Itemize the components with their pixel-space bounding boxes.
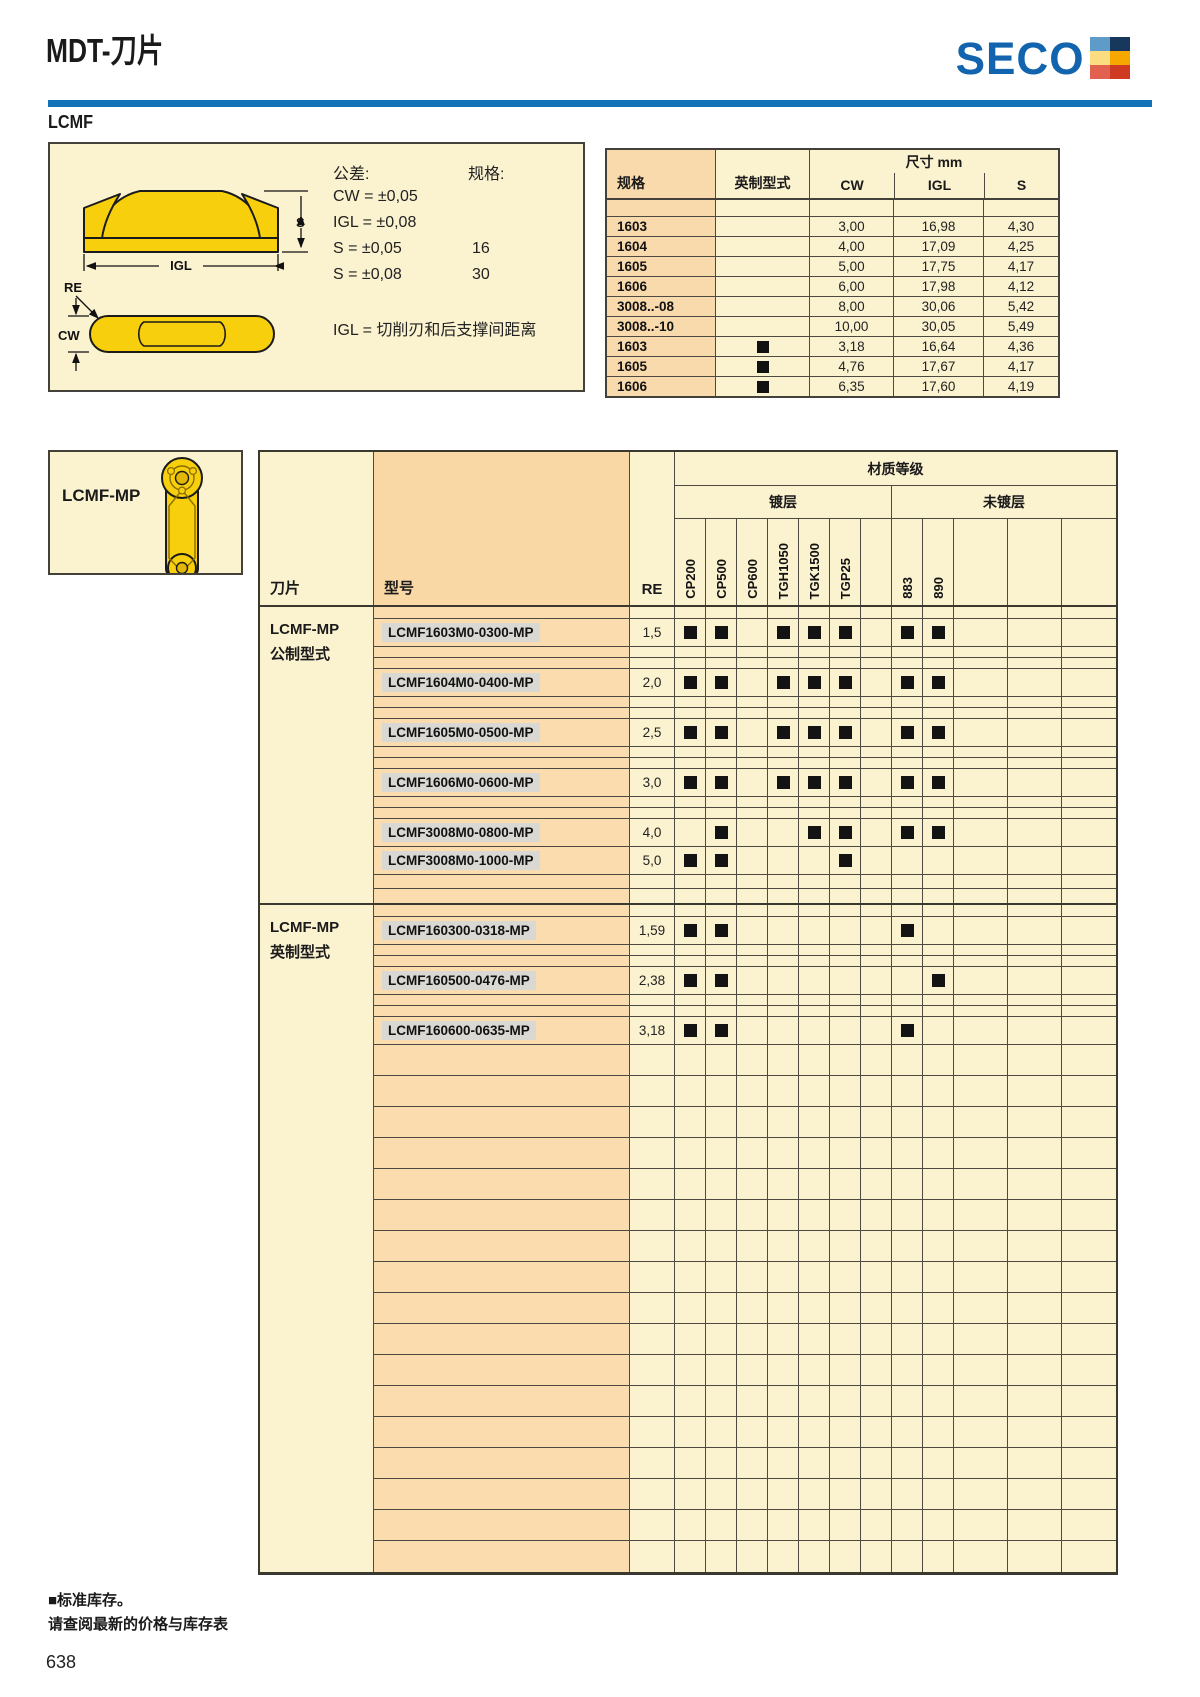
grade-cell — [737, 905, 768, 916]
dim-table-row: 16066,3517,604,19 — [607, 377, 1058, 396]
grade-cell — [861, 1045, 892, 1075]
model-cell — [374, 747, 630, 757]
grade-cell — [768, 1231, 799, 1261]
spacer-row — [374, 607, 1116, 619]
grade-cell — [768, 1045, 799, 1075]
grade-cell — [892, 797, 923, 807]
grade-cell — [737, 669, 768, 696]
grade-cell — [923, 1479, 954, 1509]
grade-cell — [768, 1076, 799, 1106]
grade-cell — [1008, 889, 1062, 903]
empty-row — [374, 1541, 1116, 1572]
grade-cell — [799, 1448, 830, 1478]
grade-cell — [923, 1355, 954, 1385]
grade-cell — [861, 905, 892, 916]
grade-cell — [830, 1324, 861, 1354]
grade-cell — [923, 967, 954, 994]
grade-cell — [1008, 1169, 1062, 1199]
grade-cell — [737, 1169, 768, 1199]
grade-cell — [706, 905, 737, 916]
grade-cell — [706, 1045, 737, 1075]
grade-cell — [830, 647, 861, 657]
grade-cell — [675, 1107, 706, 1137]
grade-cell — [861, 1417, 892, 1447]
grade-cell — [830, 769, 861, 796]
empty-row — [374, 1479, 1116, 1510]
grade-cell — [706, 1479, 737, 1509]
model-cell — [374, 875, 630, 888]
model-cell: LCMF1603M0-0300-MP — [374, 619, 630, 646]
grade-cell — [923, 956, 954, 966]
grade-cell — [923, 1169, 954, 1199]
grade-cell — [1062, 1017, 1116, 1044]
stock-square — [808, 676, 821, 689]
grade-cell — [706, 1200, 737, 1230]
grade-columns: CP200CP500CP600TGH1050TGK1500TGP25883890 — [675, 519, 1116, 605]
spacer-row — [374, 758, 1116, 769]
grade-cell — [768, 1262, 799, 1292]
grade-col-empty — [1008, 519, 1062, 605]
stock-square — [932, 776, 945, 789]
grade-cell — [799, 808, 830, 818]
spacer-row — [374, 747, 1116, 758]
grade-cell — [737, 719, 768, 746]
grade-cell — [1062, 905, 1116, 916]
grade-cell — [1008, 669, 1062, 696]
grade-cell — [830, 719, 861, 746]
model-cell — [374, 1448, 630, 1478]
stock-square — [715, 974, 728, 987]
grade-cell — [892, 708, 923, 718]
stock-square — [808, 626, 821, 639]
grade-cell — [954, 917, 1008, 944]
grade-col-empty — [1062, 519, 1116, 605]
dim-s-cell: 4,36 — [984, 337, 1058, 356]
grade-cell — [892, 1479, 923, 1509]
grade-cell — [768, 697, 799, 707]
grade-cell — [737, 875, 768, 888]
grade-cell — [706, 1541, 737, 1572]
dim-igl-cell: 17,75 — [894, 257, 984, 276]
stock-square — [757, 381, 769, 393]
grade-cell — [1008, 1386, 1062, 1416]
grade-cell — [923, 875, 954, 888]
grade-cell — [861, 945, 892, 955]
grade-cell — [737, 1293, 768, 1323]
grade-cell — [706, 1262, 737, 1292]
grade-cell — [830, 758, 861, 768]
grade-cell — [1062, 995, 1116, 1005]
grade-cell — [706, 1107, 737, 1137]
dim-size-group: 尺寸 mm CW IGL S — [810, 150, 1058, 198]
grade-cell — [706, 847, 737, 874]
grade-cell — [923, 797, 954, 807]
grade-cell — [768, 647, 799, 657]
re-cell — [630, 808, 675, 818]
tolerance-igl: IGL = ±0,08 — [333, 214, 416, 232]
spacer-row — [374, 697, 1116, 708]
stock-square — [839, 676, 852, 689]
stock-square — [932, 826, 945, 839]
table-section: LCMF-MP英制型式LCMF160300-0318-MP1,59LCMF160… — [260, 903, 1116, 1572]
grade-cell — [923, 1510, 954, 1540]
grade-cell — [861, 956, 892, 966]
model-cell — [374, 1510, 630, 1540]
grade-cell — [830, 1262, 861, 1292]
grade-cell — [1008, 967, 1062, 994]
grade-cell — [737, 769, 768, 796]
dim-s-cell — [984, 200, 1058, 216]
grade-cell — [954, 747, 1008, 757]
spacer-row — [374, 875, 1116, 889]
grade-col-890: 890 — [923, 519, 954, 605]
grade-cell — [892, 1541, 923, 1572]
grade-cell — [861, 769, 892, 796]
dim-inch-cell — [716, 357, 810, 376]
grade-cell — [1008, 1006, 1062, 1016]
grade-cell — [830, 607, 861, 618]
section-label: LCMF-MP公制型式 — [260, 607, 374, 903]
grade-cell — [706, 1076, 737, 1106]
grade-cell — [954, 1541, 1008, 1572]
stock-square — [684, 854, 697, 867]
size-title: 规格: — [468, 160, 504, 184]
logo-color-square — [1090, 37, 1110, 51]
tolerance-title: 公差: — [333, 160, 369, 184]
grade-cell — [1062, 1200, 1116, 1230]
insert-picture — [140, 456, 230, 575]
stock-square — [715, 626, 728, 639]
model-cell: LCMF3008M0-1000-MP — [374, 847, 630, 874]
grade-cell — [954, 1479, 1008, 1509]
dim-igl-cell — [894, 200, 984, 216]
grade-cell — [1062, 1417, 1116, 1447]
model-cell — [374, 905, 630, 916]
grade-cell — [737, 889, 768, 903]
grade-cell — [737, 797, 768, 807]
grade-cell — [830, 956, 861, 966]
grade-cell — [799, 697, 830, 707]
re-cell — [630, 1006, 675, 1016]
grade-cell — [861, 1006, 892, 1016]
grade-cell — [954, 956, 1008, 966]
grade-cell — [892, 945, 923, 955]
re-cell — [630, 697, 675, 707]
empty-row — [374, 1231, 1116, 1262]
grade-cell — [675, 1510, 706, 1540]
stock-square — [715, 676, 728, 689]
grade-cell — [768, 658, 799, 668]
grade-cell — [892, 1006, 923, 1016]
re-cell — [630, 1200, 675, 1230]
grade-cell — [830, 658, 861, 668]
grade-cell — [1008, 819, 1062, 846]
grade-cell — [675, 875, 706, 888]
size-16: 16 — [472, 240, 490, 258]
re-cell — [630, 1045, 675, 1075]
dim-table-body: 16033,0016,984,3016044,0017,094,2516055,… — [607, 217, 1058, 396]
section-label-line2: 英制型式 — [270, 940, 373, 965]
dim-table-row: 3008..-088,0030,065,42 — [607, 297, 1058, 317]
stock-square — [715, 1024, 728, 1037]
stock-square — [684, 924, 697, 937]
model-cell — [374, 1006, 630, 1016]
model-cell: LCMF1604M0-0400-MP — [374, 669, 630, 696]
grade-cell — [1062, 1510, 1116, 1540]
grade-cell — [892, 808, 923, 818]
model-number: LCMF1606M0-0600-MP — [382, 773, 540, 792]
grade-cell — [675, 758, 706, 768]
stock-square — [715, 854, 728, 867]
grade-cell — [737, 967, 768, 994]
grade-cell — [954, 1262, 1008, 1292]
stock-square — [839, 826, 852, 839]
dim-inch-cell — [716, 237, 810, 256]
grade-cell — [892, 658, 923, 668]
tolerance-s30: S = ±0,08 — [333, 266, 402, 284]
grade-cell — [799, 956, 830, 966]
grade-cell — [1062, 697, 1116, 707]
grade-cell — [892, 1169, 923, 1199]
grade-cell — [799, 905, 830, 916]
model-cell — [374, 607, 630, 618]
dim-igl-cell: 30,05 — [894, 317, 984, 336]
grade-cell — [768, 1107, 799, 1137]
model-cell: LCMF160300-0318-MP — [374, 917, 630, 944]
grade-cell — [706, 967, 737, 994]
grade-cell — [861, 669, 892, 696]
stock-square — [684, 1024, 697, 1037]
dim-s-cell: 5,49 — [984, 317, 1058, 336]
grade-cell — [923, 819, 954, 846]
grade-cell — [706, 747, 737, 757]
re-cell — [630, 758, 675, 768]
grade-cell — [830, 669, 861, 696]
model-cell — [374, 1076, 630, 1106]
grade-cell — [1062, 719, 1116, 746]
grade-cell — [1008, 1479, 1062, 1509]
grade-cell — [861, 1386, 892, 1416]
grade-cell — [954, 769, 1008, 796]
grade-cell — [830, 847, 861, 874]
grade-cell — [768, 1138, 799, 1168]
grade-cell — [706, 669, 737, 696]
grade-cell — [768, 945, 799, 955]
grade-cell — [1008, 647, 1062, 657]
grade-cell — [954, 658, 1008, 668]
grade-cell — [954, 1045, 1008, 1075]
grade-cell — [830, 747, 861, 757]
grade-cell — [1062, 1045, 1116, 1075]
grade-cell — [737, 1417, 768, 1447]
grade-cell — [799, 719, 830, 746]
dim-cw-cell: 5,00 — [810, 257, 894, 276]
re-cell — [630, 1541, 675, 1572]
dim-inch-cell — [716, 257, 810, 276]
grade-cell — [923, 995, 954, 1005]
grade-cell — [737, 758, 768, 768]
seco-logo: SECO — [938, 34, 1130, 82]
model-cell — [374, 808, 630, 818]
grade-cell — [1062, 945, 1116, 955]
grade-cell — [1062, 875, 1116, 888]
grade-cell — [892, 905, 923, 916]
grade-cell — [768, 889, 799, 903]
grade-cell — [861, 1107, 892, 1137]
grade-cell — [799, 1293, 830, 1323]
grade-cell — [706, 945, 737, 955]
empty-row — [374, 1510, 1116, 1541]
re-cell — [630, 1355, 675, 1385]
grade-cell — [799, 875, 830, 888]
grade-cell — [954, 1417, 1008, 1447]
grade-cell — [892, 967, 923, 994]
spacer-row — [374, 956, 1116, 967]
grade-cell — [923, 1386, 954, 1416]
grade-cell — [1062, 967, 1116, 994]
grade-cell — [830, 875, 861, 888]
grade-cell — [923, 719, 954, 746]
grade-cell — [737, 1231, 768, 1261]
grade-cell — [1008, 945, 1062, 955]
grade-cell — [1062, 769, 1116, 796]
grade-cell — [830, 1417, 861, 1447]
logo-color-square — [1090, 51, 1110, 65]
dim-col-inch: 英制型式 — [716, 150, 810, 198]
grade-cell — [861, 1138, 892, 1168]
grade-cell — [706, 1355, 737, 1385]
empty-row — [374, 1045, 1116, 1076]
grade-cell — [768, 619, 799, 646]
grade-cell — [737, 658, 768, 668]
stock-square — [839, 854, 852, 867]
grade-cell — [1008, 619, 1062, 646]
grade-cell — [892, 1417, 923, 1447]
section-label-line1: LCMF-MP — [270, 617, 373, 642]
stock-square — [684, 676, 697, 689]
grade-cell — [1062, 1231, 1116, 1261]
grade-cell — [830, 1479, 861, 1509]
dim-igl-cell: 17,09 — [894, 237, 984, 256]
empty-row — [374, 1200, 1116, 1231]
re-cell: 2,0 — [630, 669, 675, 696]
grade-cell — [861, 758, 892, 768]
re-cell: 3,0 — [630, 769, 675, 796]
grade-cell — [954, 995, 1008, 1005]
dim-group-header: 尺寸 mm — [810, 150, 1058, 173]
grade-cell — [1062, 1006, 1116, 1016]
re-cell — [630, 647, 675, 657]
dim-table-row: 16044,0017,094,25 — [607, 237, 1058, 257]
empty-row — [374, 1076, 1116, 1107]
grade-cell — [923, 1045, 954, 1075]
grade-label: TGP25 — [838, 558, 853, 599]
grade-cell — [1062, 889, 1116, 903]
grade-cell — [892, 647, 923, 657]
grade-cell — [737, 1045, 768, 1075]
col-model-header: 型号 — [374, 452, 630, 605]
grade-label: CP500 — [714, 559, 729, 599]
dim-spec-cell: 1605 — [607, 257, 716, 276]
grade-cell — [1008, 1107, 1062, 1137]
grade-cell — [737, 847, 768, 874]
dim-spec-cell: 1606 — [607, 377, 716, 396]
grade-label: TGK1500 — [807, 543, 822, 599]
grade-cell — [675, 847, 706, 874]
grade-cell — [737, 619, 768, 646]
tolerance-s16: S = ±0,05 — [333, 240, 402, 258]
grade-cell — [675, 647, 706, 657]
grade-cell — [1062, 1355, 1116, 1385]
grade-cell — [830, 1006, 861, 1016]
dim-cw-cell: 4,00 — [810, 237, 894, 256]
grade-cell — [892, 889, 923, 903]
grade-cell — [954, 875, 1008, 888]
grade-cell — [923, 1448, 954, 1478]
grade-cell — [768, 1355, 799, 1385]
grade-cell — [675, 1386, 706, 1416]
model-cell — [374, 1541, 630, 1572]
grade-cell — [892, 697, 923, 707]
dim-cw-cell: 3,00 — [810, 217, 894, 236]
grade-cell — [954, 889, 1008, 903]
grade-cell — [799, 607, 830, 618]
re-cell — [630, 995, 675, 1005]
main-table-body: LCMF-MP公制型式LCMF1603M0-0300-MP1,5LCMF1604… — [260, 607, 1116, 1572]
grade-cell — [892, 719, 923, 746]
grade-cell — [768, 956, 799, 966]
grade-cell — [923, 1076, 954, 1106]
grade-cell — [923, 1262, 954, 1292]
re-cell: 4,0 — [630, 819, 675, 846]
grade-cell — [923, 1293, 954, 1323]
empty-row — [374, 1355, 1116, 1386]
grade-cell — [830, 1045, 861, 1075]
dim-table-row: 3008..-1010,0030,055,49 — [607, 317, 1058, 337]
grade-cell — [1008, 1262, 1062, 1292]
grade-cell — [675, 945, 706, 955]
grade-col-empty — [954, 519, 1008, 605]
model-cell — [374, 1417, 630, 1447]
grade-cell — [861, 875, 892, 888]
grade-cell — [954, 1231, 1008, 1261]
seco-logo-text: SECO — [956, 36, 1085, 81]
stock-square — [684, 776, 697, 789]
dim-cw-cell — [810, 200, 894, 216]
grade-cell — [675, 889, 706, 903]
grade-cell — [799, 1138, 830, 1168]
grade-cell — [1008, 1417, 1062, 1447]
grade-cell — [737, 956, 768, 966]
dim-igl-cell: 16,98 — [894, 217, 984, 236]
grade-cell — [830, 1386, 861, 1416]
grade-cell — [861, 1169, 892, 1199]
dim-cw-cell: 10,00 — [810, 317, 894, 336]
model-cell — [374, 1200, 630, 1230]
grade-cell — [799, 1479, 830, 1509]
grade-cell — [830, 1293, 861, 1323]
grade-cell — [1008, 697, 1062, 707]
grade-cell — [830, 1231, 861, 1261]
grade-cell — [892, 917, 923, 944]
tolerance-info-box: S IGL RE CW 公差: CW = ±0,05 IGL = ±0,08 S… — [48, 142, 585, 392]
grade-cell — [737, 1541, 768, 1572]
grade-cell — [861, 1262, 892, 1292]
grade-cell — [799, 769, 830, 796]
stock-square — [684, 974, 697, 987]
grade-cell — [706, 917, 737, 944]
grade-cell — [799, 708, 830, 718]
